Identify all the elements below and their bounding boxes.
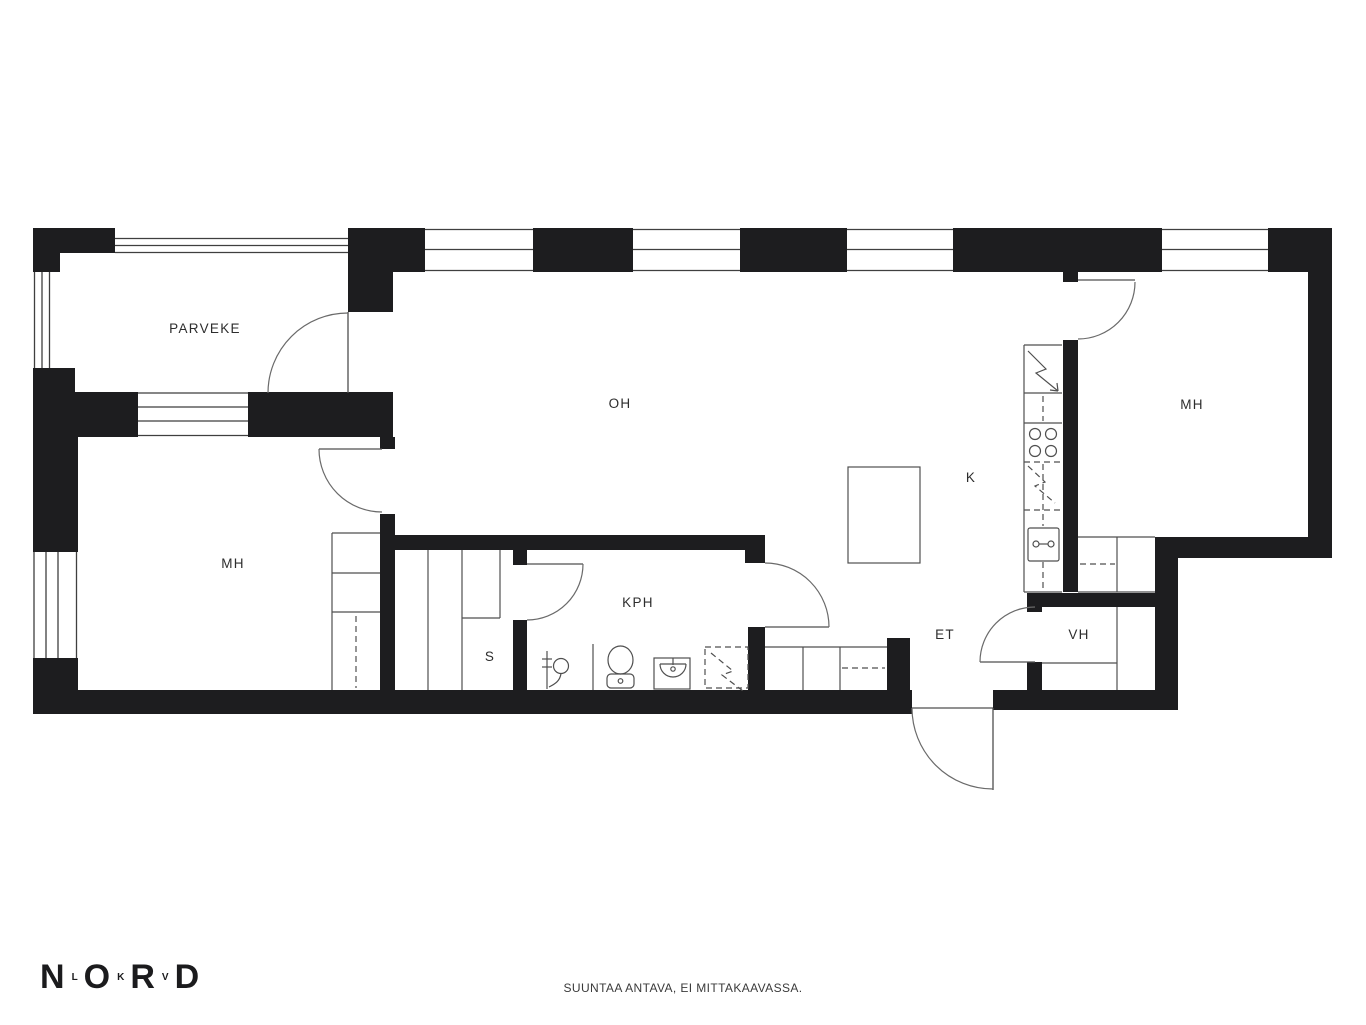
room-label-mh-right: MH [1180,397,1204,412]
wall-segment [33,437,78,552]
toilet-icon [607,646,634,688]
fixtures [332,345,1155,691]
hall-closets-icon [765,647,887,690]
floor-plan-page: PARVEKE OH MH MH K KPH S ET VH N L O K R… [0,0,1366,1025]
washing-machine-icon [705,647,748,691]
dishwasher-icon [1028,466,1055,503]
wardrobe-right-icon [1078,537,1155,592]
wall-segment [748,627,765,690]
wall-segment [887,638,910,692]
wall-segment [745,550,765,563]
shower-icon [542,651,569,689]
wall-segment [953,228,1162,272]
bathroom-sauna-door [527,564,583,620]
wall-segment [1063,340,1078,592]
room-label-vh: VH [1068,627,1089,642]
wall-segment [380,535,765,550]
wall-segment [33,228,115,253]
wall-segment [1155,558,1178,710]
wall-segment [1155,537,1332,558]
balcony-left-window [35,272,50,368]
bedroom-right-door [1078,280,1135,339]
wall-segment [380,437,395,449]
room-label-oh: OH [609,396,632,411]
room-label-et: ET [935,627,955,642]
wall-segment [33,253,60,272]
wall-segment [533,228,633,272]
living-room-window-2 [633,230,740,271]
wall-segment [1027,593,1042,612]
fridge-icon [1028,351,1058,391]
bedroom-right-window [1162,230,1268,271]
wall-segment [740,228,847,272]
bedroom-left-window [34,552,77,658]
wardrobe-left-icon [332,533,380,690]
living-room-window-3 [847,230,953,271]
wall-segment [1063,268,1078,282]
bathroom-hall-door [765,563,829,627]
wall-segment [993,690,1178,710]
room-labels: PARVEKE OH MH MH K KPH S ET VH [169,321,1204,664]
wall-segment [1042,593,1155,607]
balcony-door [268,312,348,393]
washbasin-icon [654,658,690,689]
wall-segment [513,620,527,690]
entry-door [912,708,993,790]
room-label-parveke: PARVEKE [169,321,241,336]
dining-table-icon [848,467,920,563]
kitchen-counter-icon [1024,345,1062,592]
room-label-k: K [966,470,976,485]
wall-segment [1308,272,1332,539]
walls [33,228,1332,714]
balcony-bedroom-window [138,393,248,436]
room-label-kph: KPH [622,595,654,610]
room-label-mh-left: MH [221,556,245,571]
wall-segment [1027,662,1042,690]
wall-segment [513,550,527,565]
sauna-benches-icon [428,550,500,690]
kitchen-sink-icon [1028,528,1059,561]
room-label-s: S [485,649,495,664]
wall-segment [248,392,393,437]
wall-segment [348,228,425,272]
living-room-window-1 [425,230,533,271]
closet-vh-door [980,607,1035,662]
wall-segment [33,368,75,437]
wall-segment [33,690,912,714]
balcony-top-window [115,239,348,253]
wall-segment [348,272,393,312]
stove-icon [1030,429,1057,457]
wall-segment [33,658,78,690]
floor-plan-drawing: PARVEKE OH MH MH K KPH S ET VH [0,0,1366,1025]
bedroom-left-door [319,449,382,512]
wall-segment [1268,228,1332,272]
disclaimer-text: SUUNTAA ANTAVA, EI MITTAKAAVASSA. [0,981,1366,995]
vh-shelves-icon [1042,607,1117,690]
